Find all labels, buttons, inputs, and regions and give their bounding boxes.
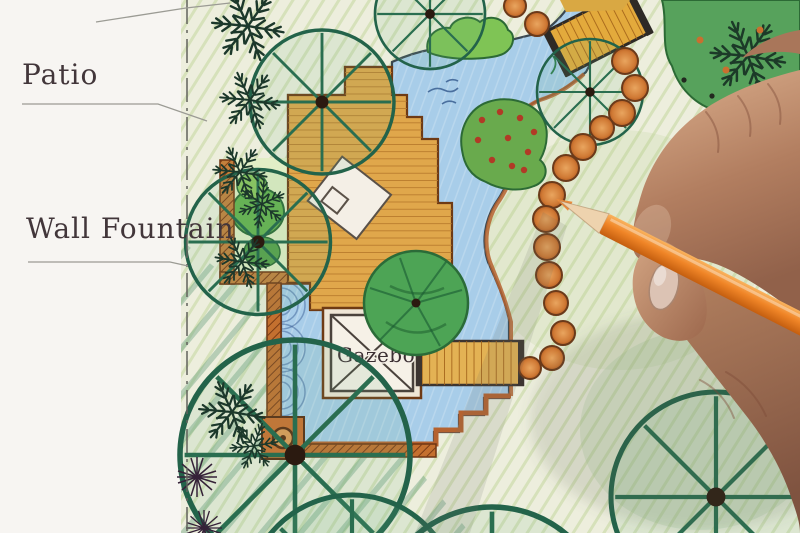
photo-of-landscape-plan: Gazebo [0,0,800,533]
round-tree [364,251,468,355]
wall-fountain-label: Wall Fountain [26,212,235,245]
patio-label: Patio [22,58,98,91]
berry-shrub [461,99,547,189]
